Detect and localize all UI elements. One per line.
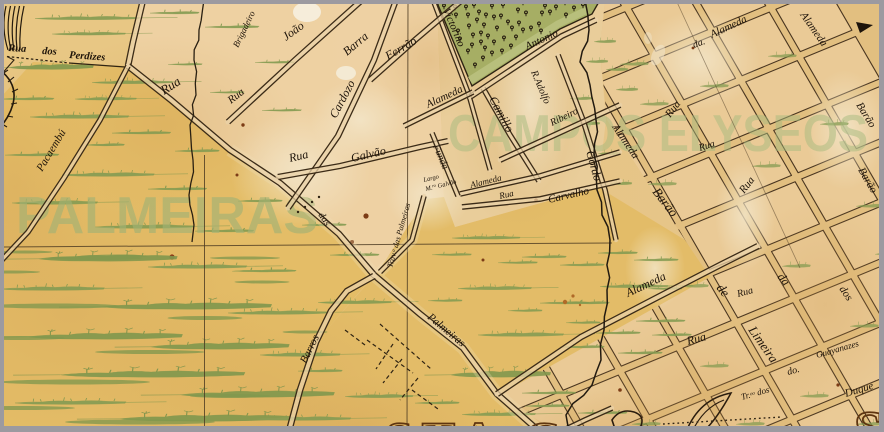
svg-text:dos: dos — [42, 46, 57, 58]
svg-text:Rua: Rua — [7, 43, 27, 55]
svg-text:PALMEIRAS: PALMEIRAS — [16, 187, 318, 245]
